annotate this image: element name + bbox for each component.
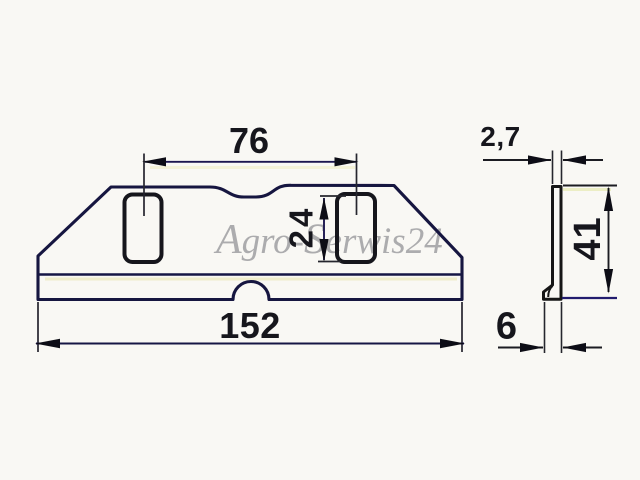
svg-text:41: 41 bbox=[567, 216, 609, 260]
svg-text:24: 24 bbox=[283, 206, 320, 249]
svg-text:6: 6 bbox=[496, 306, 517, 348]
svg-text:76: 76 bbox=[229, 120, 269, 161]
svg-text:2,7: 2,7 bbox=[480, 121, 520, 152]
svg-text:152: 152 bbox=[219, 305, 281, 346]
